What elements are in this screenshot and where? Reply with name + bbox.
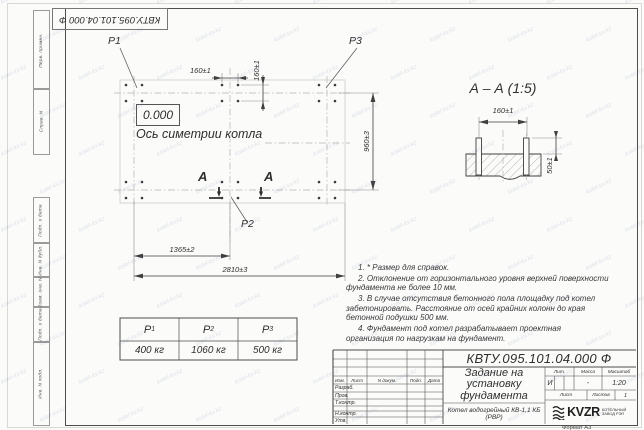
section-dim-protrusion-wrap: 50±1 bbox=[532, 160, 566, 170]
note-3: 3. В случае отсутствия бетонного пола пл… bbox=[346, 294, 610, 322]
tb-lit-value: И bbox=[545, 377, 555, 389]
tb-sheets-label: Листов bbox=[587, 391, 615, 400]
tb-row-prov: Пров. bbox=[335, 393, 349, 399]
plan-centerlines bbox=[114, 68, 350, 243]
loads-value-p3: 500 кг bbox=[238, 341, 297, 360]
tb-mass-value: - bbox=[574, 377, 602, 389]
kvzr-coil-icon bbox=[552, 405, 565, 420]
axis-of-symmetry-label: Ось симетрии котла bbox=[136, 127, 262, 141]
technical-notes: 1. * Размер для справок. 2. Отклонение о… bbox=[346, 263, 610, 345]
loads-value-p2: 1060 кг bbox=[179, 341, 238, 360]
p-name: P bbox=[144, 324, 151, 336]
dim-row-spacing-wrap: 960±3 bbox=[349, 136, 383, 146]
tb-scale-value: 1:20 bbox=[602, 377, 636, 389]
section-view-title: А – А (1:5) bbox=[438, 80, 568, 96]
title-block-subject: Котел водогрейный КВ-1,1 КБ (РВР) bbox=[444, 404, 544, 423]
p-sub: 1 bbox=[151, 326, 155, 333]
plan-slab-outline bbox=[120, 80, 345, 203]
loads-header-p2: P2 bbox=[179, 318, 238, 341]
section-mark-letter-right: А bbox=[264, 169, 273, 184]
tb-row-tkontr: Т.контр. bbox=[335, 400, 356, 406]
format-label: Формат А3 bbox=[562, 425, 591, 430]
section-mark-letter-left: А bbox=[198, 169, 207, 184]
tb-row-utv: Утв. bbox=[335, 418, 347, 424]
tb-sheets-value: 1 bbox=[615, 391, 636, 400]
title-block-designation: КВТУ.095.101.04.000 Ф bbox=[444, 351, 634, 366]
section-cut-arrows bbox=[217, 192, 263, 198]
title-block-document-title: Задание на установку фундамента bbox=[444, 368, 544, 402]
dim-bolt-spacing-v: 160±1 bbox=[252, 60, 261, 81]
loads-value-p1: 400 кг bbox=[120, 341, 179, 360]
note-2: 2. Отклонение от горизонтального уровня … bbox=[346, 274, 610, 293]
section-view-drawing bbox=[466, 130, 541, 184]
tb-col-ndoc: N докум. bbox=[367, 377, 407, 384]
dim-bolt-spacing-v-wrap: 160±1 bbox=[239, 65, 273, 75]
elevation-mark: 0.000 bbox=[136, 104, 180, 126]
tb-scale-label: Масштаб bbox=[602, 368, 636, 376]
company-name: KVZR bbox=[567, 405, 600, 419]
dim-bolt-spacing-h: 160±1 bbox=[190, 66, 211, 75]
section-bolt-left bbox=[476, 138, 482, 175]
dim-col-spacing: 1365±2 bbox=[152, 245, 212, 254]
loads-header-p1: P1 bbox=[120, 318, 179, 341]
tb-lit-label: Лит. bbox=[545, 368, 574, 376]
tb-col-izm: Изм. bbox=[333, 377, 347, 384]
tb-col-list: Лист bbox=[347, 377, 367, 384]
load-point-label-p1: P1 bbox=[108, 35, 121, 47]
drawing-sheet: kotel-kv.kzkotel-kv.kzkotel-kv.kzkotel-k… bbox=[0, 0, 644, 430]
company-logo: KVZR КОТЕЛЬНЫЙ ЗАВОД РЭП bbox=[546, 401, 635, 423]
company-caption: КОТЕЛЬНЫЙ ЗАВОД РЭП bbox=[602, 408, 629, 417]
note-1: 1. * Размер для справок. bbox=[346, 263, 610, 272]
tb-col-podp: Подп. bbox=[407, 377, 425, 384]
p-sub: 3 bbox=[269, 326, 273, 333]
section-dim-bolt-spacing: 160±1 bbox=[479, 106, 527, 115]
p-sub: 2 bbox=[210, 326, 214, 333]
section-dim-protrusion: 50±1 bbox=[544, 157, 553, 174]
tb-row-nkontr: Н.контр. bbox=[335, 411, 357, 417]
note-4: 4. Фундамент под котел разрабатывает про… bbox=[346, 324, 610, 343]
anchor-bolts bbox=[125, 84, 337, 200]
dim-total-width: 2810±3 bbox=[205, 265, 265, 274]
p-name: P bbox=[262, 324, 269, 336]
loads-header-p3: P3 bbox=[238, 318, 297, 341]
tb-col-data: Дата bbox=[425, 377, 443, 384]
tb-mass-label: Масса bbox=[574, 368, 602, 376]
elevation-value: 0.000 bbox=[143, 108, 173, 122]
tb-row-razrab: Разраб. bbox=[335, 385, 354, 391]
load-point-label-p2: P2 bbox=[241, 218, 254, 230]
dim-row-spacing: 960±3 bbox=[362, 131, 371, 152]
section-bolt-right bbox=[524, 138, 530, 175]
load-point-label-p3: P3 bbox=[349, 35, 362, 47]
tb-sheet-label: Лист bbox=[545, 391, 587, 400]
